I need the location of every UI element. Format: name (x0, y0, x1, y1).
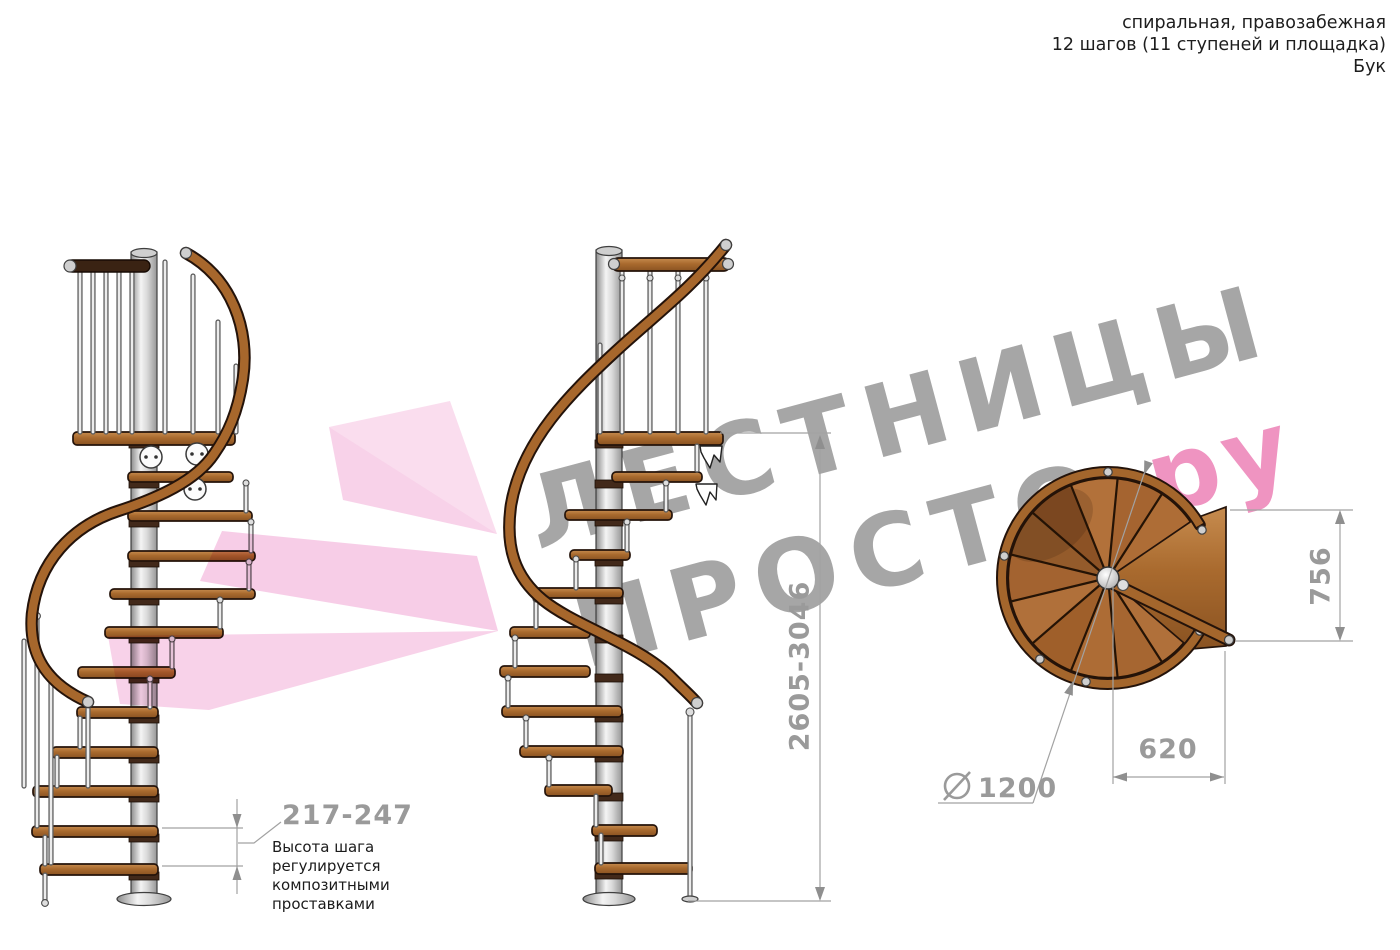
drawing-canvas: ЛЕСТНИЦЫ ПРОСТО.ру (0, 0, 1400, 950)
top-guard-rail (66, 260, 150, 272)
middle-elevation-view (500, 240, 734, 906)
rail-end-ball (64, 260, 76, 272)
stair-steps: 12 шагов (11 ступеней и площадка) (1052, 34, 1386, 56)
stair-material: Бук (1052, 56, 1386, 78)
platform-plank (73, 432, 235, 445)
base-flange (583, 893, 635, 906)
step-height-value: 217-247 (282, 800, 413, 831)
diameter-symbol-icon (944, 772, 970, 800)
step-height-note: Высота шага регулируется композитными пр… (272, 838, 406, 914)
drawing-svg: 2605-3046 217-247 756 620 (0, 0, 1400, 950)
diameter-value: 1200 (978, 773, 1057, 804)
center-pole (131, 252, 157, 900)
dimension-plan-depth: 756 (1230, 510, 1353, 641)
plan-center-pole (1097, 567, 1119, 589)
title-block: спиральная, правозабежная 12 шагов (11 с… (1052, 12, 1386, 78)
base-flange (117, 893, 171, 906)
stair-type: спиральная, правозабежная (1052, 12, 1386, 34)
plan-width-value: 620 (1138, 734, 1197, 765)
pole-top-cap (596, 247, 622, 256)
wall-bracket-break (696, 484, 717, 505)
total-height-value: 2605-3046 (785, 581, 816, 752)
wall-bracket-break (700, 446, 722, 468)
platform-plank (597, 432, 723, 445)
dimension-total-height: 2605-3046 (688, 433, 831, 901)
plan-depth-value: 756 (1306, 546, 1337, 605)
pole-top-cap (131, 249, 157, 258)
